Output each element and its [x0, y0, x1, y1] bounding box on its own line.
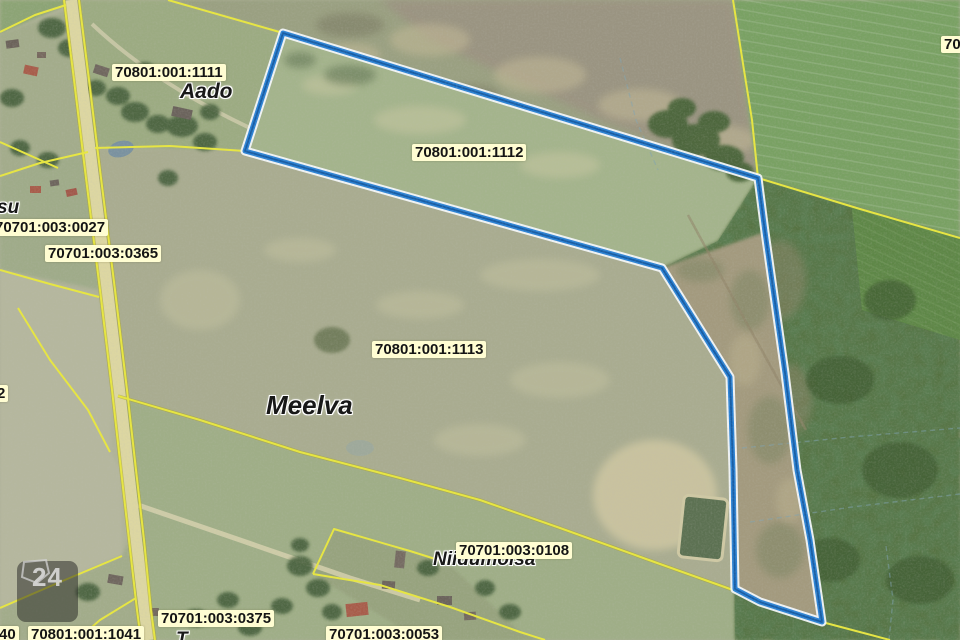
- cluster-marker[interactable]: 24: [17, 561, 78, 622]
- parcel-number-label: 70801:001:1112: [412, 144, 526, 161]
- parcel-number-label: 70801:001:1111: [112, 64, 226, 81]
- map-viewport[interactable]: AadoMeelvaNiidumõisasuT70801:001:1111708…: [0, 0, 960, 640]
- parcel-number-label: 70801:001:1113: [372, 341, 486, 358]
- place-name-label: Aado: [180, 80, 233, 104]
- parcel-number-label: 70: [941, 36, 960, 53]
- parcel-number-label: 40: [0, 626, 19, 640]
- parcel-number-label: 70701:003:0027: [0, 219, 108, 236]
- parcel-shape-icon: [17, 559, 53, 585]
- parcel-number-label: 70701:003:0053: [326, 626, 442, 640]
- place-name-label: Meelva: [266, 390, 353, 421]
- parcel-number-label: 70801:001:1041: [28, 626, 144, 640]
- place-name-label: T: [176, 629, 188, 640]
- parcel-number-label: 70701:003:0108: [456, 542, 572, 559]
- place-name-label: su: [0, 197, 19, 219]
- parcel-number-label: 70701:003:0365: [45, 245, 161, 262]
- parcel-number-label: 2: [0, 385, 8, 402]
- parcel-number-label: 70701:003:0375: [158, 610, 274, 627]
